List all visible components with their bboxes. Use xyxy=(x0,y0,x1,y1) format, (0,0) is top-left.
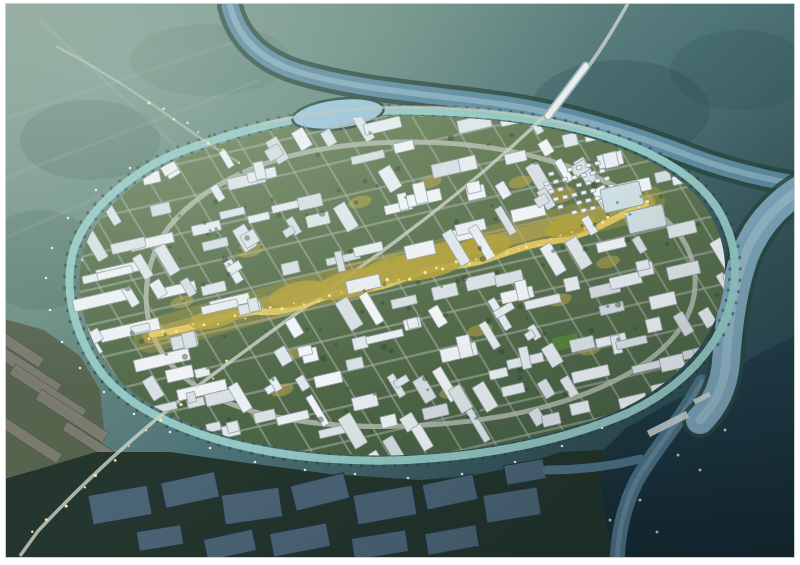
axis-light xyxy=(525,246,528,249)
tree-dot xyxy=(533,159,539,165)
canal-lamp xyxy=(354,473,357,476)
canal-lamp xyxy=(129,167,132,170)
axis-light xyxy=(492,254,495,257)
mini-building xyxy=(576,165,582,170)
tree-dot xyxy=(271,378,274,381)
mini-building xyxy=(562,195,568,200)
axis-light xyxy=(571,231,573,233)
tree-dot xyxy=(319,328,322,331)
screenshot-canvas: Oblique aerial dusk rendering of a maste… xyxy=(0,0,800,565)
tree-dot xyxy=(499,349,505,355)
axis-light xyxy=(435,267,438,270)
tree-dot xyxy=(277,212,282,217)
tree-dot xyxy=(182,300,185,303)
tree-dot xyxy=(426,388,429,391)
mini-building xyxy=(590,188,596,193)
tree-dot xyxy=(517,375,522,380)
tree-dot xyxy=(526,317,529,320)
building-wing xyxy=(602,151,619,169)
tree-dot xyxy=(454,219,460,225)
highway-light xyxy=(179,403,182,406)
tree-dot xyxy=(448,135,454,141)
tree-dot xyxy=(494,218,497,221)
tree-dot xyxy=(348,249,353,254)
mini-building xyxy=(576,200,582,205)
tree-dot xyxy=(795,222,800,227)
tree-dot xyxy=(360,310,364,314)
tree-dot xyxy=(589,328,595,334)
boat-dot xyxy=(639,499,642,502)
tree-dot xyxy=(639,195,642,198)
mini-building xyxy=(553,179,559,184)
mini-building xyxy=(590,171,596,176)
building xyxy=(562,132,579,148)
tree-dot xyxy=(715,293,719,297)
axis-light xyxy=(148,338,151,341)
mini-building xyxy=(604,176,610,181)
axis-light xyxy=(318,301,320,303)
tree-dot xyxy=(88,271,91,274)
tree-dot xyxy=(335,343,338,346)
tree-dot xyxy=(182,354,188,360)
highway-light xyxy=(128,445,130,447)
tree-dot xyxy=(580,224,583,227)
axis-light xyxy=(601,221,604,224)
tree-dot xyxy=(315,153,320,158)
tree-dot xyxy=(305,328,309,332)
tree-dot xyxy=(213,199,219,205)
tree-dot xyxy=(542,263,545,266)
axis-light xyxy=(261,313,263,315)
highway-light xyxy=(31,531,33,533)
tree-dot xyxy=(443,312,448,317)
avenue-light xyxy=(207,142,210,145)
tree-dot xyxy=(480,256,486,262)
tree-dot xyxy=(305,213,309,217)
tree-dot xyxy=(665,242,669,246)
building xyxy=(563,276,580,292)
tree-dot xyxy=(239,170,243,174)
mini-building xyxy=(567,167,573,172)
building-wing xyxy=(407,317,420,329)
tree-dot xyxy=(490,204,493,207)
axis-light xyxy=(217,323,219,325)
avenue-light xyxy=(147,101,150,104)
tree-dot xyxy=(388,348,393,353)
tree-dot xyxy=(237,248,242,253)
canal-lamp xyxy=(561,445,564,448)
tree-dot xyxy=(139,339,144,344)
mini-building xyxy=(595,196,601,201)
tree-dot xyxy=(563,390,569,396)
tree-dot xyxy=(583,246,588,251)
axis-light xyxy=(506,252,508,254)
axis-light xyxy=(537,245,539,247)
tree-dot xyxy=(373,393,377,397)
highway-light xyxy=(65,504,68,507)
canal-lamp xyxy=(407,477,410,480)
axis-light xyxy=(606,216,609,219)
tree-dot xyxy=(476,409,480,413)
building-wing xyxy=(186,391,197,403)
boat-dot xyxy=(609,519,612,522)
tree-dot xyxy=(487,143,490,146)
highway-light xyxy=(45,518,48,521)
tree-dot xyxy=(395,166,400,171)
highway-light xyxy=(94,474,97,477)
tree-dot xyxy=(164,353,168,357)
axis-light xyxy=(234,315,236,317)
canal-lamp xyxy=(45,277,48,280)
axis-light xyxy=(202,323,205,326)
mini-building xyxy=(544,181,550,186)
tree-dot xyxy=(202,221,206,225)
tree-dot xyxy=(381,323,384,326)
highway-light xyxy=(225,359,228,362)
tree-dot xyxy=(416,281,421,286)
mini-building xyxy=(599,169,605,174)
tree-dot xyxy=(624,237,630,243)
tree-dot xyxy=(485,317,491,323)
axis-light xyxy=(646,200,649,203)
axis-light xyxy=(560,235,562,237)
avenue-light xyxy=(238,162,240,164)
tree-dot xyxy=(178,214,181,217)
tree-dot xyxy=(222,256,228,262)
axis-light xyxy=(269,306,271,308)
canal-lamp xyxy=(304,469,307,472)
tree-dot xyxy=(226,272,231,277)
axis-light xyxy=(638,206,640,208)
mini-building xyxy=(581,173,587,178)
tree-dot xyxy=(510,133,514,137)
canal-lamp xyxy=(95,189,98,192)
mini-building xyxy=(590,206,596,211)
tree-dot xyxy=(370,431,373,434)
mini-building xyxy=(548,172,554,177)
tree-dot xyxy=(228,263,231,266)
tree-dot xyxy=(560,245,565,250)
tree-dot xyxy=(244,205,247,208)
tree-dot xyxy=(591,182,597,188)
tree-dot xyxy=(659,194,664,199)
tree-dot xyxy=(466,416,470,420)
axis-light xyxy=(518,248,520,250)
canal-lamp xyxy=(61,341,64,344)
tree-dot xyxy=(616,201,619,204)
mini-building xyxy=(571,175,577,180)
axis-light xyxy=(352,288,355,291)
mini-building xyxy=(562,177,568,182)
canal-lamp xyxy=(133,413,136,416)
tree-dot xyxy=(616,337,620,341)
mini-building xyxy=(571,210,577,215)
tree-dot xyxy=(206,233,210,237)
building xyxy=(645,317,663,334)
axis-light xyxy=(303,303,305,305)
axis-light xyxy=(398,279,400,281)
tree-dot xyxy=(382,282,386,286)
aerial-city-rendering: Oblique aerial dusk rendering of a maste… xyxy=(0,0,800,565)
tree-dot xyxy=(125,285,131,291)
tree-dot xyxy=(696,222,700,226)
tree-dot xyxy=(381,301,385,305)
axis-light xyxy=(192,323,194,325)
tree-dot xyxy=(244,235,249,240)
axis-light xyxy=(293,302,295,304)
canal-lamp xyxy=(461,473,464,476)
axis-light xyxy=(468,263,471,266)
tree-dot xyxy=(375,184,379,188)
tree-dot xyxy=(440,285,443,288)
avenue-light xyxy=(173,118,176,121)
canal-lamp xyxy=(169,431,172,434)
avenue-light xyxy=(221,148,223,150)
tree-dot xyxy=(404,196,407,199)
mini-building xyxy=(595,161,601,166)
mini-building xyxy=(581,190,587,195)
boat-dot xyxy=(724,429,727,432)
boat-dot xyxy=(699,469,702,472)
tree-dot xyxy=(344,409,348,413)
canal-lamp xyxy=(254,461,257,464)
highway-light xyxy=(145,429,147,431)
tree-dot xyxy=(381,344,387,350)
tree-dot xyxy=(337,189,340,192)
tree-dot xyxy=(542,332,546,336)
tree-dot xyxy=(593,223,597,227)
axis-light xyxy=(441,268,444,271)
axis-light xyxy=(280,307,283,310)
axis-light xyxy=(550,238,552,240)
axis-light xyxy=(475,258,477,260)
tree-dot xyxy=(363,179,368,184)
axis-light xyxy=(455,260,458,263)
tree-dot xyxy=(130,330,135,335)
tree-dot xyxy=(633,327,636,330)
axis-light xyxy=(161,331,163,333)
axis-light xyxy=(386,278,390,282)
tree-dot xyxy=(319,210,325,216)
axis-light xyxy=(424,271,427,274)
avenue-light xyxy=(162,107,165,110)
tree-dot xyxy=(479,249,482,252)
tree-dot xyxy=(518,367,523,372)
axis-light xyxy=(328,294,331,297)
axis-light xyxy=(375,283,378,286)
mini-building xyxy=(585,198,591,203)
tree-dot xyxy=(407,307,411,311)
highway-light xyxy=(212,378,214,380)
mini-building xyxy=(585,181,591,186)
building-wing xyxy=(0,231,2,254)
canal-lamp xyxy=(49,309,52,312)
axis-light xyxy=(408,278,411,281)
highway-light xyxy=(114,459,117,462)
tree-dot xyxy=(422,375,428,381)
tree-dot xyxy=(455,278,460,283)
canal-lamp xyxy=(601,427,604,430)
avenue-light xyxy=(197,131,199,133)
mini-building xyxy=(558,205,564,210)
tree-dot xyxy=(206,366,210,370)
mini-building xyxy=(558,187,564,192)
axis-light xyxy=(584,228,586,230)
highway-light xyxy=(159,419,162,422)
axis-light xyxy=(175,330,178,333)
tree-dot xyxy=(271,198,275,202)
tree-dot xyxy=(209,229,212,232)
tree-dot xyxy=(168,245,172,249)
axis-light xyxy=(244,318,246,320)
photo-area xyxy=(0,0,800,565)
canal-lamp xyxy=(514,461,517,464)
tree-dot xyxy=(216,234,219,237)
mini-building xyxy=(571,193,577,198)
boat-dot xyxy=(677,454,680,457)
tree-dot xyxy=(518,304,523,309)
canal-lamp xyxy=(79,367,82,370)
tree-dot xyxy=(628,213,631,216)
mini-building xyxy=(576,183,582,188)
tree-dot xyxy=(495,270,500,275)
tree-dot xyxy=(475,417,478,420)
tree-dot xyxy=(164,333,168,337)
canal-lamp xyxy=(51,247,54,250)
building-wing xyxy=(226,420,240,433)
tree-dot xyxy=(615,301,621,307)
highway-light xyxy=(84,486,86,488)
canal-lamp xyxy=(209,447,212,450)
tree-dot xyxy=(368,131,371,134)
canal-lamp xyxy=(67,217,70,220)
rendering-scene: Oblique aerial dusk rendering of a maste… xyxy=(0,0,800,565)
canal-lamp xyxy=(103,391,106,394)
tree-dot xyxy=(223,335,227,339)
tree-dot xyxy=(214,227,218,231)
axis-light xyxy=(624,213,626,215)
tree-dot xyxy=(606,305,609,308)
tree-dot xyxy=(346,387,350,391)
axis-light xyxy=(365,288,367,290)
tree-dot xyxy=(318,417,324,423)
tree-dot xyxy=(212,359,214,361)
tree-dot xyxy=(320,355,326,361)
tree-dot xyxy=(265,329,268,332)
tree-dot xyxy=(589,161,592,164)
tree-dot xyxy=(526,388,529,391)
boat-dot xyxy=(656,531,659,534)
tree-dot xyxy=(227,417,231,421)
mini-building xyxy=(581,208,587,213)
avenue-light xyxy=(186,122,188,124)
tree-dot xyxy=(551,249,555,253)
highway-light xyxy=(196,386,198,388)
mini-building xyxy=(548,189,554,194)
tree-dot xyxy=(179,258,182,261)
tree-dot xyxy=(260,246,263,249)
tree-dot xyxy=(201,282,206,287)
tree-dot xyxy=(461,275,467,281)
mini-building xyxy=(553,197,559,202)
tree-dot xyxy=(354,200,358,204)
axis-light xyxy=(341,292,343,294)
